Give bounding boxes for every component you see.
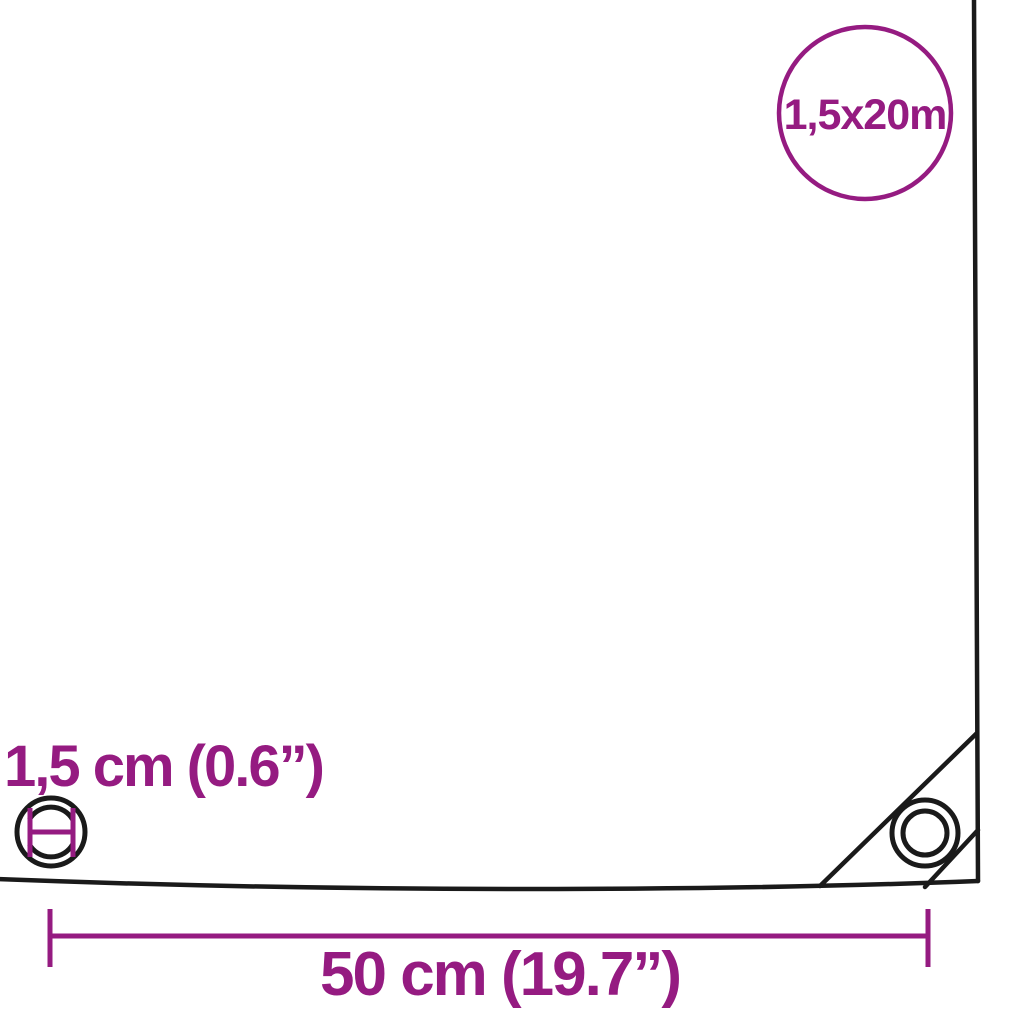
width-dimension-label: 50 cm (19.7”) [320, 940, 680, 1009]
diagram-canvas: 1,5 cm (0.6”) 1,5x20m 50 cm (19.7”) [0, 0, 1024, 1024]
eyelet-inner-ring-bottom-arc [29, 845, 72, 857]
tarpaulin-dimension-diagram: 1,5 cm (0.6”) 1,5x20m 50 cm (19.7”) [0, 0, 1024, 1024]
size-badge: 1,5x20m [779, 27, 951, 199]
eyelet-diameter-label: 1,5 cm (0.6”) [4, 734, 323, 799]
size-badge-label: 1,5x20m [784, 91, 947, 139]
eyelet-cross-section-icon [17, 798, 85, 866]
tarp-bottom-edge [0, 879, 978, 889]
tarp-right-edge [974, 0, 978, 881]
corner-hem-line [925, 830, 978, 887]
width-dimension: 50 cm (19.7”) [50, 909, 928, 1009]
corner-eyelet-icon [892, 800, 958, 866]
eyelet-inner-ring-top-arc [29, 807, 72, 819]
corner-eyelet-inner-ring [903, 811, 947, 855]
